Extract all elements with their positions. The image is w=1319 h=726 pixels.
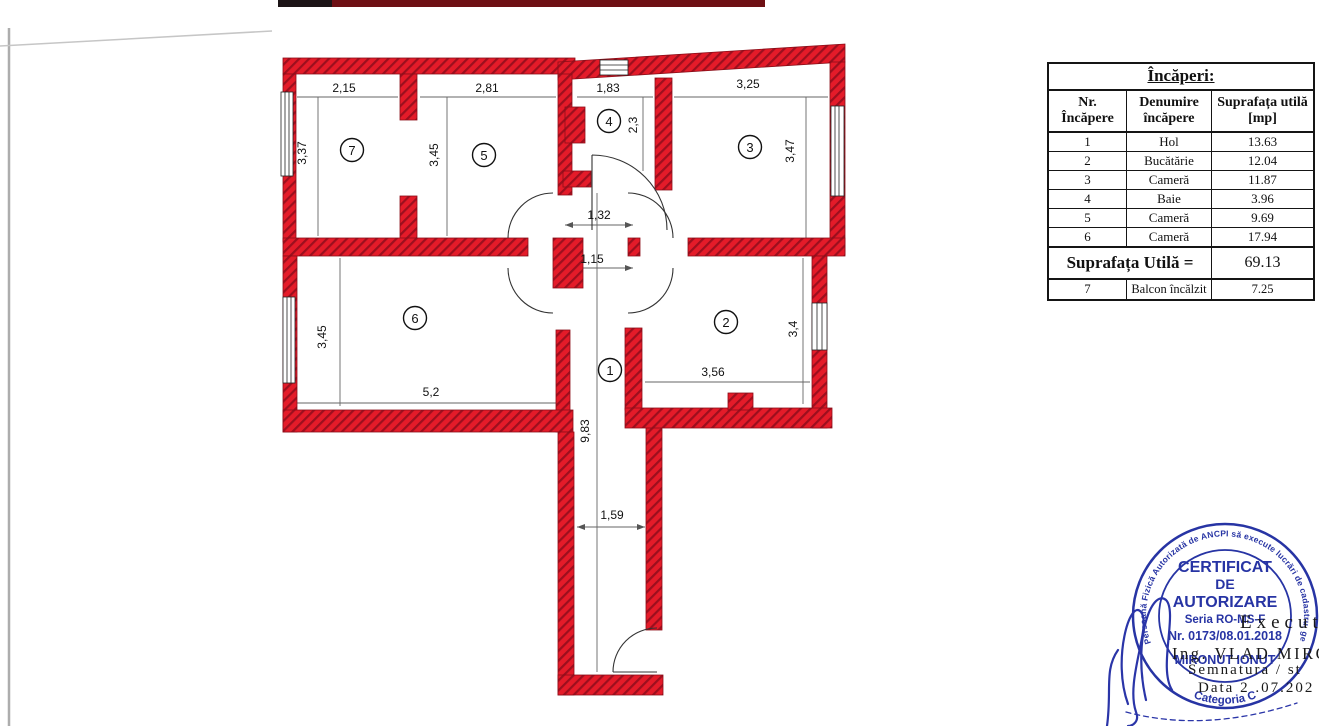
dimension-label: 1,32 — [587, 208, 611, 222]
door-room2 — [628, 268, 673, 313]
door-room6 — [508, 268, 553, 313]
header-denumire: Denumire încăpere — [1127, 91, 1212, 131]
cell-room-name: Balcon încălzit — [1127, 280, 1212, 299]
cell-room-number: 7 — [1049, 280, 1127, 299]
room-number-2: 2 — [715, 311, 738, 334]
dimension-label: 2,3 — [626, 116, 640, 133]
rooms-table-header: Nr. Încăpere Denumire încăpere Suprafața… — [1049, 91, 1313, 133]
dimension-labels: 2,15 2,81 1,83 3,25 3,37 3,45 2,3 3,47 1… — [295, 77, 800, 522]
window-room7-left — [281, 92, 293, 176]
stamp-line-de: DE — [1215, 576, 1234, 592]
stamp-line-certificat: CERTIFICAT — [1178, 559, 1272, 576]
scanned-document-page: 2,15 2,81 1,83 3,25 3,37 3,45 2,3 3,47 1… — [0, 0, 1319, 726]
room-number-7: 7 — [341, 139, 364, 162]
redacted-bar-dark — [278, 0, 332, 7]
cell-room-area: 17.94 — [1212, 228, 1313, 246]
window-top-vent — [600, 60, 628, 75]
total-value: 69.13 — [1212, 248, 1313, 278]
cell-room-number: 3 — [1049, 171, 1127, 189]
executant-label: Executant — [1240, 612, 1319, 633]
dimension-label: 3,45 — [427, 143, 441, 167]
cell-room-area: 3.96 — [1212, 190, 1313, 208]
dimension-label: 3,47 — [783, 139, 797, 163]
engineer-name: Ing. VLAD MIRONUT — [1172, 644, 1319, 663]
room-number-5: 5 — [473, 144, 496, 167]
cell-room-area: 9.69 — [1212, 209, 1313, 227]
total-label: Suprafața Utilă = — [1049, 248, 1212, 278]
cell-room-name: Cameră — [1127, 171, 1212, 189]
room-number-6: 6 — [404, 307, 427, 330]
cell-room-name: Bucătărie — [1127, 152, 1212, 170]
dimension-label: 3,4 — [786, 320, 800, 337]
redacted-bar-red — [332, 0, 765, 7]
dimension-label: 2,15 — [332, 81, 356, 95]
table-row: 6 Cameră 17.94 — [1049, 228, 1313, 248]
stamp-line-autorizare: AUTORIZARE — [1173, 594, 1278, 611]
dimension-label: 5,2 — [423, 385, 440, 399]
cell-room-number: 1 — [1049, 133, 1127, 151]
dimension-label: 9,83 — [578, 419, 592, 443]
room-number-label: 7 — [348, 143, 355, 158]
dimension-label: 3,45 — [315, 325, 329, 349]
table-row-balcony: 7 Balcon încălzit 7.25 — [1049, 280, 1313, 299]
dimension-label: 1,15 — [580, 252, 604, 266]
dimension-label: 3,56 — [701, 365, 725, 379]
window-room6-left — [283, 297, 295, 383]
dimension-label: 1,83 — [596, 81, 620, 95]
room-number-1: 1 — [599, 359, 622, 382]
cell-room-name: Cameră — [1127, 209, 1212, 227]
cell-room-number: 4 — [1049, 190, 1127, 208]
cell-room-number: 2 — [1049, 152, 1127, 170]
room-number-label: 5 — [480, 148, 487, 163]
table-total-row: Suprafața Utilă = 69.13 — [1049, 248, 1313, 280]
room-number-4: 4 — [598, 110, 621, 133]
room-number-label: 1 — [606, 363, 613, 378]
cell-room-number: 5 — [1049, 209, 1127, 227]
table-row: 3 Cameră 11.87 — [1049, 171, 1313, 190]
paper-fold-line — [0, 31, 272, 46]
room-number-label: 3 — [746, 140, 753, 155]
cell-room-number: 6 — [1049, 228, 1127, 246]
cell-room-area: 12.04 — [1212, 152, 1313, 170]
room-number-label: 6 — [411, 311, 418, 326]
dimension-label: 3,25 — [736, 77, 760, 91]
rooms-table: Încăperi: Nr. Încăpere Denumire încăpere… — [1047, 62, 1315, 301]
table-row: 4 Baie 3.96 — [1049, 190, 1313, 209]
cell-room-name: Baie — [1127, 190, 1212, 208]
cell-room-area: 7.25 — [1212, 280, 1313, 299]
cell-room-area: 11.87 — [1212, 171, 1313, 189]
signature-label: Semnatura / st — [1188, 662, 1302, 678]
header-nr-incapere: Nr. Încăpere — [1049, 91, 1127, 131]
door-balcony — [613, 628, 657, 672]
dimension-label: 1,59 — [600, 508, 624, 522]
cell-room-area: 13.63 — [1212, 133, 1313, 151]
room-number-label: 4 — [605, 114, 612, 129]
table-row: 1 Hol 13.63 — [1049, 133, 1313, 152]
dimension-label: 3,37 — [295, 141, 309, 165]
room-number-label: 2 — [722, 315, 729, 330]
table-row: 2 Bucătărie 12.04 — [1049, 152, 1313, 171]
cell-room-name: Hol — [1127, 133, 1212, 151]
cell-room-name: Cameră — [1127, 228, 1212, 246]
window-room3-right — [831, 106, 844, 196]
door-room5 — [508, 193, 553, 238]
date-label: Data 2 .07.202 — [1198, 680, 1314, 696]
header-suprafata: Suprafața utilă [mp] — [1212, 91, 1313, 131]
table-row: 5 Cameră 9.69 — [1049, 209, 1313, 228]
dimension-label: 2,81 — [475, 81, 499, 95]
window-room2-right — [812, 303, 827, 350]
rooms-table-title: Încăperi: — [1049, 64, 1313, 91]
room-number-3: 3 — [739, 136, 762, 159]
